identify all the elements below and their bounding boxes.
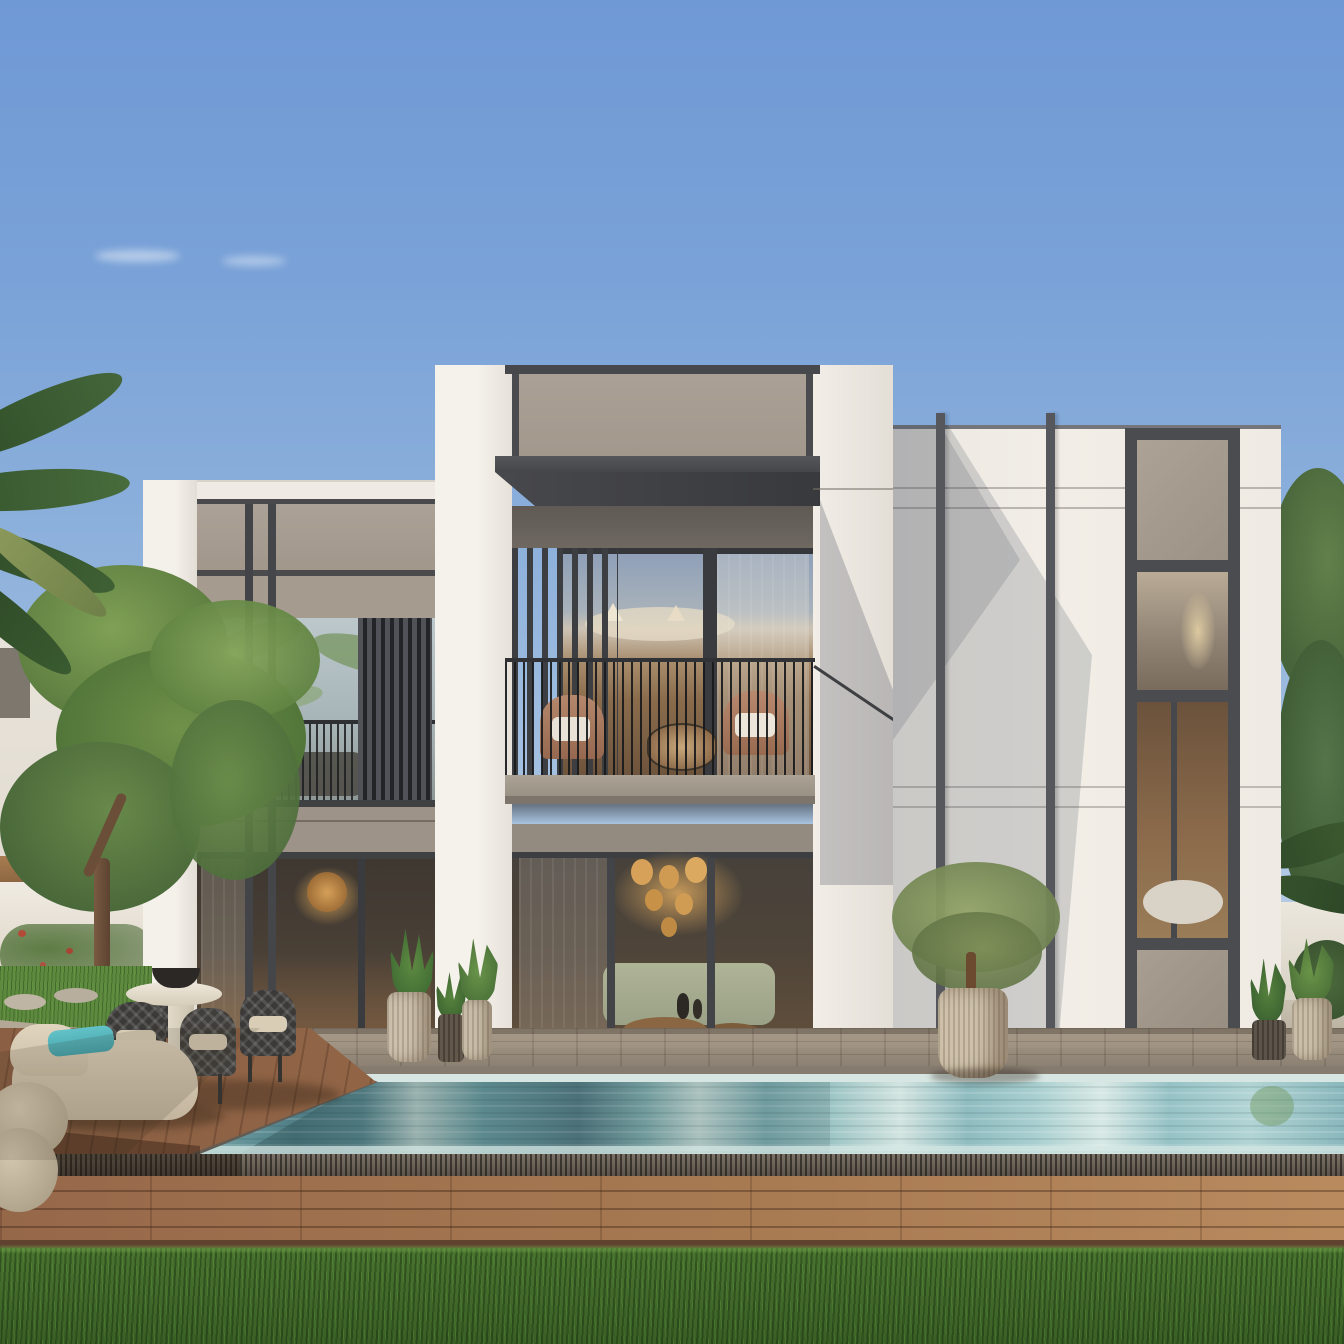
balcony-railing — [505, 658, 815, 779]
front-deck — [0, 1176, 1344, 1246]
interior-sofa — [603, 963, 775, 1025]
planter-tall-beige — [387, 992, 431, 1062]
pampas-reflection — [1181, 593, 1215, 669]
right-wing-fin-2 — [1046, 413, 1055, 1047]
interior-vase-2 — [693, 999, 702, 1019]
left-wing-chandelier — [307, 872, 347, 912]
tower-balcony-recess — [512, 506, 813, 548]
central-tower — [435, 365, 893, 1060]
balcony-glass-sail-shape-2 — [667, 605, 685, 621]
path-stone-2 — [54, 988, 98, 1003]
interior-bed-linen — [1143, 880, 1223, 924]
dining-chair-right-legs — [248, 1054, 288, 1082]
window-column-panel-top — [1137, 440, 1228, 560]
front-grass-fringe — [0, 1246, 1344, 1252]
olive-pot-shadow — [930, 1068, 1040, 1084]
building-base-shadow — [136, 1028, 1344, 1034]
cloud-wisp-left — [95, 250, 180, 262]
tree-left-canopy-5 — [170, 700, 300, 880]
planter-med-beige — [462, 1000, 492, 1060]
chandelier-heart-2 — [659, 865, 679, 889]
balcony-slab-edge — [505, 796, 815, 804]
tower-lintel — [512, 824, 813, 852]
interior-vase-1 — [677, 993, 689, 1019]
tower-canopy-fascia — [495, 456, 820, 472]
left-wing-louver-screen — [358, 618, 432, 802]
pot-right-dark — [1252, 1020, 1286, 1060]
chandelier-heart-1 — [631, 859, 653, 885]
flower-red-2 — [66, 948, 73, 954]
pool-green-reflection — [1250, 1086, 1294, 1126]
chandelier-heart-5 — [675, 893, 693, 915]
pot-right-beige — [1292, 998, 1332, 1060]
tower-curtain-pane — [519, 858, 607, 1052]
path-stone-1 — [4, 994, 46, 1010]
flower-red-1 — [18, 930, 26, 937]
tower-parapet-cap — [505, 365, 820, 374]
balcony-slab-shadow — [512, 804, 813, 824]
left-wing-fascia — [197, 480, 435, 501]
chandelier-heart-6 — [661, 917, 677, 937]
chandelier-heart-4 — [645, 889, 663, 911]
tower-attic-panel — [512, 374, 813, 456]
tower-pillar-reveal — [813, 488, 893, 490]
planter-small-dark — [438, 1014, 464, 1062]
cloud-wisp-right — [222, 256, 286, 266]
left-wing-door-frame — [358, 859, 365, 1038]
olive-planter-pot — [938, 988, 1008, 1078]
tower-ground-mullion-1 — [607, 858, 615, 1052]
front-grass — [0, 1248, 1344, 1344]
window-column-frame-mid — [1137, 690, 1228, 702]
chandelier-heart-3 — [685, 857, 707, 883]
olive-canopy-2 — [912, 912, 1042, 992]
villa-exterior-scene — [0, 0, 1344, 1344]
left-wing-panel-upper — [197, 504, 435, 570]
tower-ground-mullion-2 — [707, 858, 715, 1052]
